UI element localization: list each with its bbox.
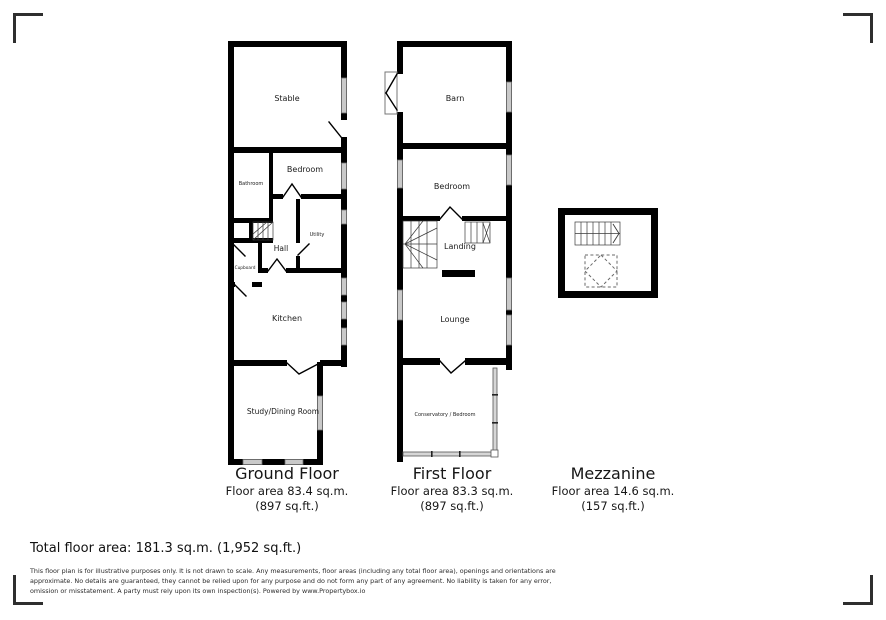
first-room-labels: Barn Bedroom Landing Lounge Conservatory… (415, 94, 476, 418)
disclaimer-text: This floor plan is for illustrative purp… (30, 567, 556, 596)
room-label-study: Study/Dining Room (247, 407, 319, 416)
first-floor-plan: Barn Bedroom Landing Lounge Conservatory… (383, 38, 518, 470)
room-label-kitchen: Kitchen (272, 314, 302, 323)
ground-floor-area: Floor area 83.4 sq.m. (212, 484, 362, 499)
room-label-hall: Hall (274, 244, 288, 253)
ground-staircase (253, 222, 273, 240)
ground-floor-title: Ground Floor (212, 464, 362, 484)
room-label-conservatory: Conservatory / Bedroom (415, 412, 476, 418)
barn-external-doors (385, 72, 397, 114)
room-label-barn: Barn (446, 94, 465, 103)
first-floor-title: First Floor (377, 464, 527, 484)
mezzanine-area-ft: (157 sq.ft.) (538, 499, 688, 514)
room-label-first-bedroom: Bedroom (434, 182, 470, 191)
room-label-bathroom: Bathroom (239, 181, 264, 187)
mezzanine-hatch (585, 255, 617, 287)
mezzanine-caption: Mezzanine Floor area 14.6 sq.m. (157 sq.… (538, 464, 688, 514)
room-label-lounge: Lounge (440, 315, 469, 324)
crop-mark-top-left (13, 13, 43, 43)
crop-mark-top-right (843, 13, 873, 43)
disclaimer-line-2: approximate. No details are guaranteed, … (30, 577, 556, 587)
ground-floor-caption: Ground Floor Floor area 83.4 sq.m. (897 … (212, 464, 362, 514)
mezzanine-walls (558, 208, 658, 298)
total-floor-area: Total floor area: 181.3 sq.m. (1,952 sq.… (30, 541, 301, 556)
crop-mark-bottom-right (843, 575, 873, 605)
mezzanine-title: Mezzanine (538, 464, 688, 484)
ground-exterior-walls (228, 41, 347, 465)
mezzanine-area: Floor area 14.6 sq.m. (538, 484, 688, 499)
first-interior-walls (397, 143, 512, 365)
room-label-bedroom: Bedroom (287, 165, 323, 174)
ground-floor-area-ft: (897 sq.ft.) (212, 499, 362, 514)
ground-interior-walls (228, 147, 347, 366)
room-label-stable: Stable (274, 94, 299, 103)
first-doors (440, 207, 465, 373)
first-small-staircase (465, 222, 490, 243)
mezzanine-plan (552, 203, 662, 303)
ground-doors (234, 120, 347, 374)
floorplan-page: Stable Bathroom Bedroom Utility Hall Cup… (0, 0, 886, 620)
room-label-utility: Utility (310, 232, 325, 238)
room-label-cupboard: Cupboard (235, 265, 256, 271)
first-floor-area: Floor area 83.3 sq.m. (377, 484, 527, 499)
disclaimer-line-1: This floor plan is for illustrative purp… (30, 567, 556, 577)
first-floor-caption: First Floor Floor area 83.3 sq.m. (897 s… (377, 464, 527, 514)
first-winder-staircase (403, 221, 437, 268)
room-label-landing: Landing (444, 242, 476, 251)
ground-floor-plan: Stable Bathroom Bedroom Utility Hall Cup… (225, 38, 350, 470)
first-windows (398, 82, 512, 345)
disclaimer-line-3: omission or misstatement. A party must r… (30, 587, 556, 597)
first-floor-area-ft: (897 sq.ft.) (377, 499, 527, 514)
mezzanine-staircase (575, 222, 620, 245)
